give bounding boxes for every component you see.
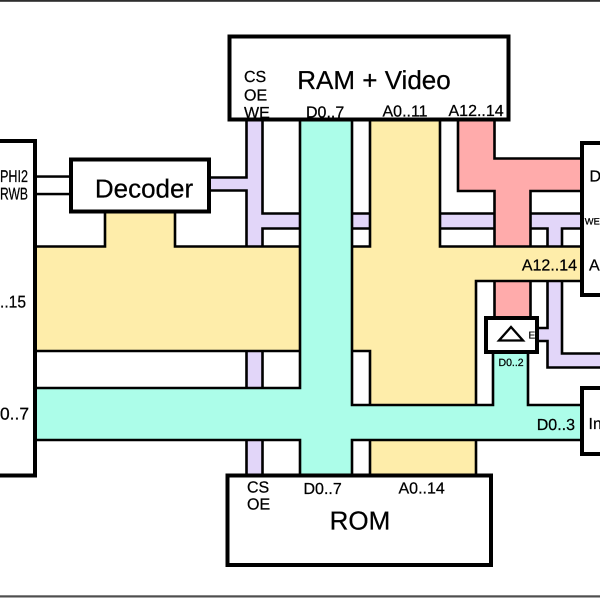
svg-text:A12..14: A12..14 [522, 258, 577, 275]
svg-text:A0..14: A0..14 [399, 481, 445, 498]
svg-text:D0..3: D0..3 [537, 417, 575, 434]
svg-text:..15: ..15 [0, 293, 26, 312]
svg-text:PHI2: PHI2 [0, 167, 28, 186]
svg-text:ROM: ROM [330, 506, 391, 536]
svg-text:D0..7: D0..7 [306, 105, 344, 122]
svg-text:A12..14: A12..14 [449, 103, 504, 120]
svg-text:CS: CS [247, 480, 269, 497]
svg-text:WE: WE [585, 217, 600, 227]
svg-text:E: E [529, 331, 536, 342]
svg-text:RAM + Video: RAM + Video [297, 65, 450, 95]
svg-text:WE: WE [244, 105, 270, 122]
svg-text:A0..11: A0..11 [383, 104, 428, 121]
svg-text:0..7: 0..7 [0, 405, 29, 424]
svg-text:OE: OE [247, 496, 270, 513]
svg-text:RWB: RWB [0, 185, 28, 204]
svg-text:Decoder: Decoder [95, 174, 194, 204]
svg-text:CS: CS [244, 69, 266, 86]
svg-text:Interface: Interface [589, 416, 600, 433]
svg-text:D0..7: D0..7 [304, 481, 342, 498]
svg-text:A0..14: A0..14 [589, 258, 600, 275]
svg-text:OE: OE [244, 88, 267, 105]
svg-text:D0..2: D0..2 [499, 357, 524, 369]
svg-text:D0..7: D0..7 [590, 169, 600, 186]
